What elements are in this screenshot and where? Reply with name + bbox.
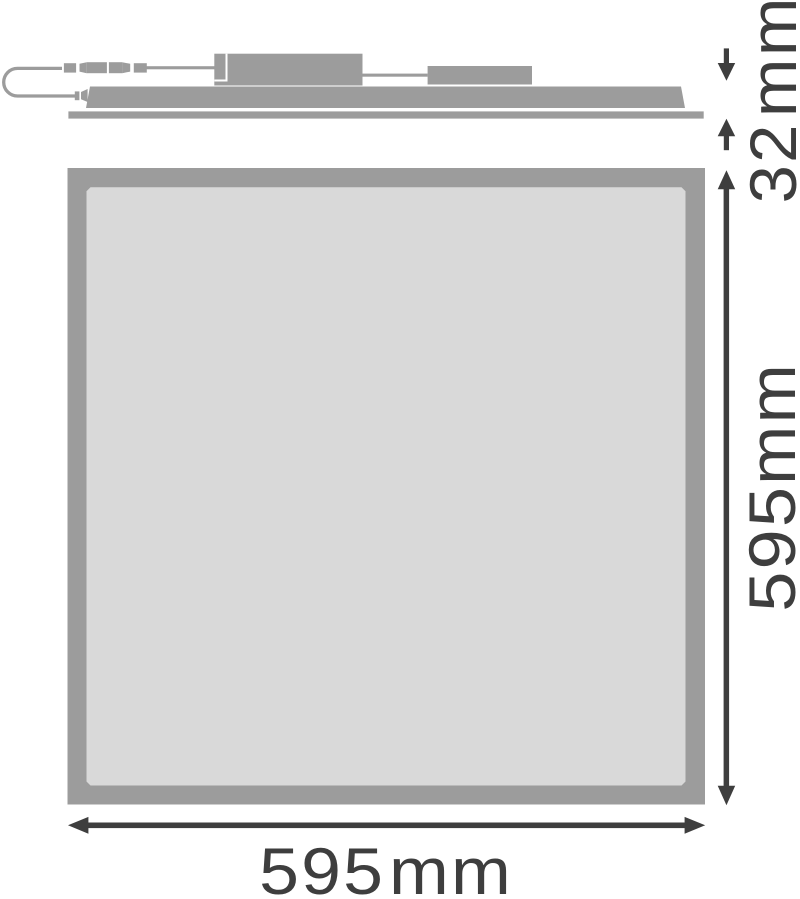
svg-text:595: 595 [259, 834, 385, 899]
svg-text:32: 32 [736, 123, 800, 204]
svg-text:mm: mm [735, 362, 800, 485]
svg-text:mm: mm [389, 834, 513, 899]
svg-text:595: 595 [735, 485, 800, 612]
svg-text:mm: mm [736, 0, 800, 117]
